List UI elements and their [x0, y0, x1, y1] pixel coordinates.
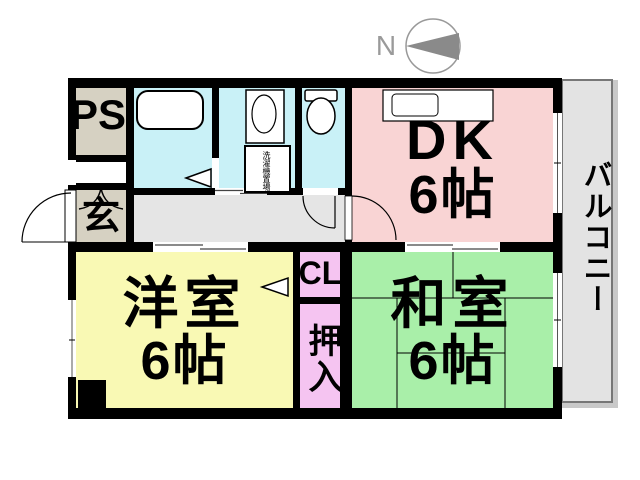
floorplan: N PS 玄 DK 6帖 洋室 6帖 和室 6帖 CL 押入 バルコニー 洗濯機…: [0, 0, 640, 480]
western-room-window: [68, 300, 76, 377]
bathtub: [137, 91, 203, 129]
bathroom-door-opening: [212, 158, 219, 188]
entrance-door-arc: [22, 193, 71, 242]
compass-north-label: N: [374, 32, 398, 60]
japanese-room-name: 和室: [352, 276, 553, 332]
japanese-room-window: [553, 273, 562, 367]
dk-door-opening: [345, 196, 352, 240]
washing-machine-label: 洗濯機置場: [258, 151, 270, 191]
balcony-label: バルコニー: [569, 130, 609, 345]
oshiire-label: 押入: [301, 309, 339, 409]
western-room-size: 6帖: [76, 334, 293, 388]
washbasin: [246, 90, 284, 143]
hallway-floor: [134, 195, 345, 242]
compass: [406, 19, 460, 73]
entrance-door: [65, 190, 76, 242]
japanese-room-sliding-door: [405, 242, 500, 252]
meter-box-opening: [68, 160, 76, 185]
western-room-sliding-door: [153, 242, 248, 252]
dk-room-size: 6帖: [352, 168, 553, 222]
dk-room-name: DK: [352, 112, 553, 168]
ps-label: PS: [70, 94, 126, 136]
toilet-fixture: [305, 90, 337, 134]
toilet-door-opening: [303, 188, 338, 195]
western-room-name: 洋室: [76, 276, 293, 332]
genkan-label: 玄: [76, 198, 126, 236]
closet-label: CL: [298, 257, 342, 289]
japanese-room-size: 6帖: [352, 334, 553, 388]
dk-window: [553, 113, 562, 213]
